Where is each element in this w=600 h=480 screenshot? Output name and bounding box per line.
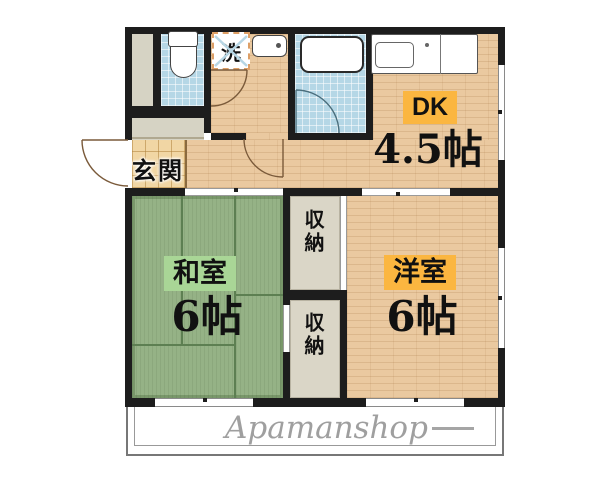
washbasin-faucet-icon [276,43,281,48]
japanese-room-label: 和室 [164,256,236,291]
dk-size: 4.5帖 [358,130,498,170]
entrance-label: 玄関 [132,151,184,186]
laundry-label: 洗 [221,37,241,66]
closet-lower-label: 収納 [302,312,322,358]
wall-left-upper [125,27,132,140]
western-room-window-divider [498,296,502,300]
wall-right-2 [498,160,505,248]
wall-toilet-washroom [204,33,211,133]
wall-mid-2 [283,188,362,196]
wall-washroom-bath [288,27,295,140]
wall-mid-1 [125,188,185,196]
washroom-door-gap-floor [246,133,288,140]
entrance-step-line [185,140,187,188]
entrance-door-opening [125,140,132,188]
wall-left-lower [125,188,132,407]
wall-shaft-toilet [153,33,161,106]
tatami-line [132,344,236,346]
watermark: Apamanshop [225,410,428,446]
western-room-sliding-door-tick [396,192,400,196]
japanese-room-size: 6帖 [152,296,262,338]
bathtub [300,36,364,73]
japanese-room-sliding-door-tick [234,188,238,192]
washbasin [252,35,287,57]
floor-plan: 洗 玄関 DK 4.5帖 和室 6帖 洋室 6帖 収納 収納 Apamansho… [0,0,600,480]
japanese-room-window-divider [203,398,207,402]
laundry-machine-pad: 洗 [212,32,250,70]
western-room-bottom-window-divider [414,398,418,402]
corridor-step-edge [132,137,204,139]
closet-upper-label: 収納 [302,209,322,255]
wall-closet-right [340,290,347,398]
wall-washroom-bottom [211,133,246,140]
wall-right-3 [498,348,505,407]
kitchen-counter-divider [440,34,441,74]
wall-below-toilet [125,106,211,118]
kitchen-faucet-icon [425,43,429,47]
dk-window-divider [498,110,502,114]
dk-label: DK [403,91,457,124]
wall-mid-3 [450,188,498,196]
western-room-sliding-door [362,188,450,196]
wall-closet-divider [283,290,347,300]
closet-lower-sliding-door [283,305,290,352]
toilet-bowl [170,46,197,78]
western-room-size: 6帖 [362,296,482,338]
watermark-dash [432,427,474,430]
wall-closet-left-lower [283,352,290,398]
toilet-tank [168,31,198,47]
entrance-door-swing [82,140,128,186]
utility-shaft-floor [131,33,153,106]
closet-upper-sliding-door [340,196,347,290]
wall-right-1 [498,27,505,65]
western-room-label: 洋室 [384,255,456,290]
wall-closet-left-upper [283,196,290,305]
kitchen-sink [375,42,414,68]
